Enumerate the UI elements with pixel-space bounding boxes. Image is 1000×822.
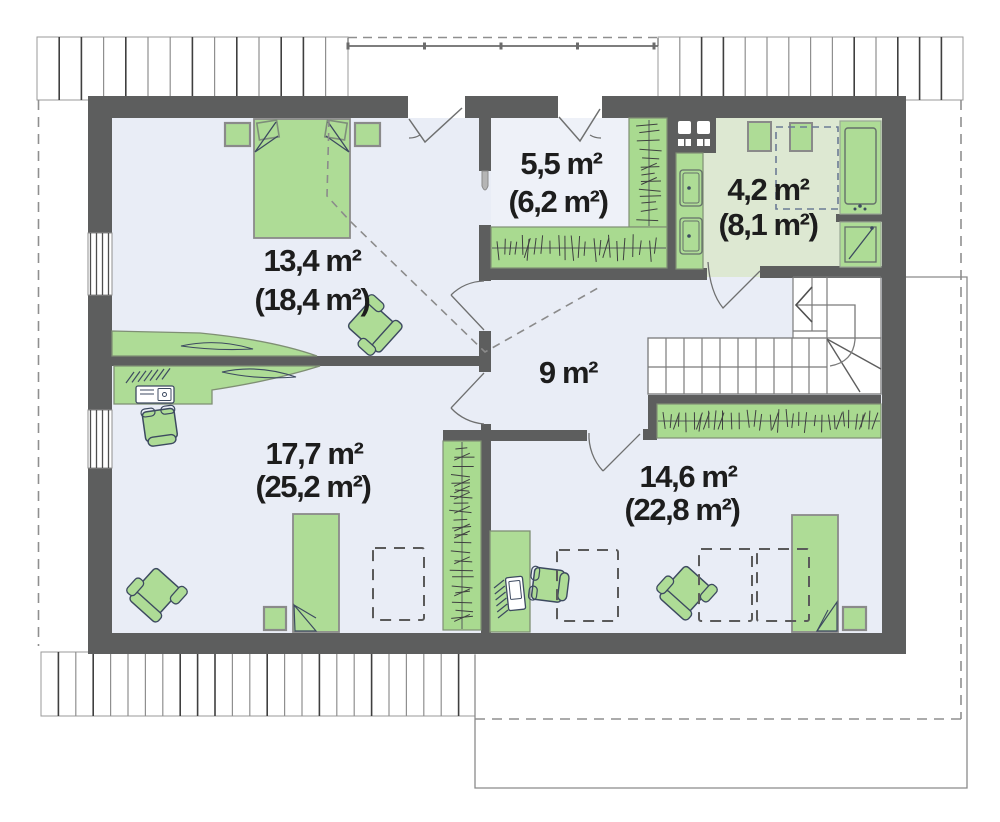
svg-text:14,6 m²: 14,6 m² — [639, 459, 737, 494]
svg-text:17,7 m²: 17,7 m² — [265, 436, 363, 471]
svg-text:5,5 m²: 5,5 m² — [520, 146, 602, 181]
svg-text:(22,8 m²): (22,8 m²) — [625, 492, 740, 527]
svg-text:9 m²: 9 m² — [539, 355, 598, 390]
svg-text:(18,4 m²): (18,4 m²) — [255, 282, 370, 317]
svg-text:4,2 m²: 4,2 m² — [727, 172, 809, 207]
svg-text:13,4 m²: 13,4 m² — [263, 243, 361, 278]
svg-text:(6,2 m²): (6,2 m²) — [508, 184, 607, 219]
svg-text:(8,1 m²): (8,1 m²) — [718, 207, 817, 242]
svg-text:(25,2 m²): (25,2 m²) — [256, 469, 371, 504]
